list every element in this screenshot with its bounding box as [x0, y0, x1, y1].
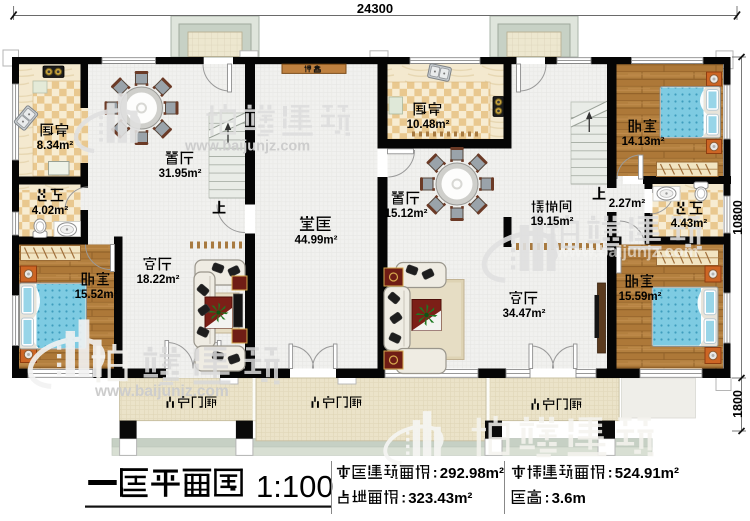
svg-text::: :: [433, 466, 438, 482]
svg-text:2.27m²: 2.27m²: [609, 198, 646, 210]
svg-text:34.47m²: 34.47m²: [503, 308, 546, 320]
svg-text:1:100: 1:100: [256, 469, 334, 504]
svg-text:323.43m²: 323.43m²: [408, 490, 472, 507]
svg-text:18.22m²: 18.22m²: [137, 274, 180, 286]
svg-text:15.59m²: 15.59m²: [619, 291, 662, 303]
svg-text:10800: 10800: [731, 200, 745, 235]
svg-text:15.12m²: 15.12m²: [385, 208, 428, 220]
svg-text:10.48m²: 10.48m²: [407, 119, 450, 131]
svg-text:524.91m²: 524.91m²: [615, 465, 679, 482]
svg-text:292.98m²: 292.98m²: [440, 465, 504, 482]
svg-text:1800: 1800: [731, 390, 745, 418]
svg-text:24300: 24300: [357, 1, 393, 16]
svg-text:8.34m²: 8.34m²: [37, 140, 74, 152]
svg-text:15.52m²: 15.52m²: [75, 289, 118, 301]
svg-text:www.baijunjz.com: www.baijunjz.com: [555, 243, 698, 261]
svg-text:19.15m²: 19.15m²: [531, 216, 574, 228]
svg-text:3.6m: 3.6m: [552, 490, 586, 507]
svg-text:www.baijunjz.com: www.baijunjz.com: [184, 139, 310, 155]
svg-text::: :: [608, 466, 613, 482]
svg-text:14.13m²: 14.13m²: [622, 136, 665, 148]
svg-text:44.99m²: 44.99m²: [295, 235, 338, 247]
svg-text:4.02m²: 4.02m²: [32, 205, 69, 217]
svg-text::: :: [545, 491, 550, 507]
svg-text::: :: [401, 491, 406, 507]
svg-text:31.95m²: 31.95m²: [159, 168, 202, 180]
svg-text:4.43m²: 4.43m²: [671, 218, 708, 230]
